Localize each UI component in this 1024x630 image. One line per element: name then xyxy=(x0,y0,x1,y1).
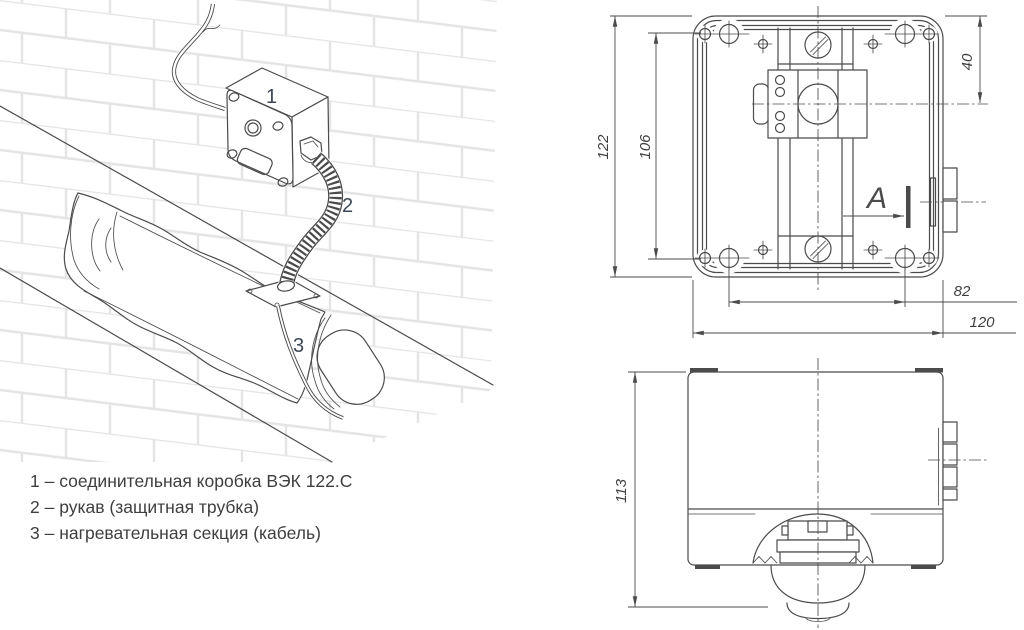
callout-cable: 3 xyxy=(293,335,304,357)
callout-box: 1 xyxy=(266,86,277,108)
view-cut-bar xyxy=(906,186,911,228)
svg-text:122: 122 xyxy=(595,134,612,160)
installation-illustration: 1 2 3 xyxy=(0,0,560,470)
mounting-rails xyxy=(778,28,853,269)
legend: 1 – соединительная коробка ВЭК 122.С 2 –… xyxy=(30,468,352,546)
legend-item-sleeve: 2 – рукав (защитная трубка) xyxy=(30,494,352,520)
bottom-gland xyxy=(753,514,873,622)
side-view-drawing: 113 xyxy=(590,350,1024,630)
dim-offset-40: 40 xyxy=(945,16,987,103)
svg-text:113: 113 xyxy=(613,478,630,503)
legend-item-box: 1 – соединительная коробка ВЭК 122.С xyxy=(30,468,352,494)
side-connector-profile xyxy=(939,422,958,505)
legend-item-cable: 3 – нагревательная секция (кабель) xyxy=(30,520,352,546)
dim-holes-82: 82 xyxy=(729,265,1017,307)
foot-left xyxy=(695,565,720,569)
dim-height-113: 113 xyxy=(613,372,768,607)
side-centerlines xyxy=(818,358,987,628)
lid-tab-right xyxy=(915,368,943,373)
svg-text:120: 120 xyxy=(969,314,995,331)
manual-figure-page: 1 2 3 1 – соединительная коробка ВЭК 122… xyxy=(0,0,1024,630)
svg-text:106: 106 xyxy=(637,134,654,160)
view-label: A xyxy=(865,182,887,215)
svg-text:82: 82 xyxy=(954,283,971,300)
svg-text:40: 40 xyxy=(959,53,976,70)
front-view-drawing: A 122 106 40 82 xyxy=(590,0,1024,350)
callout-sleeve: 2 xyxy=(342,195,353,217)
side-connector xyxy=(931,168,958,232)
dim-screws-106: 106 xyxy=(637,33,701,259)
lid-tab-left xyxy=(690,368,718,373)
foot-right xyxy=(911,565,936,569)
